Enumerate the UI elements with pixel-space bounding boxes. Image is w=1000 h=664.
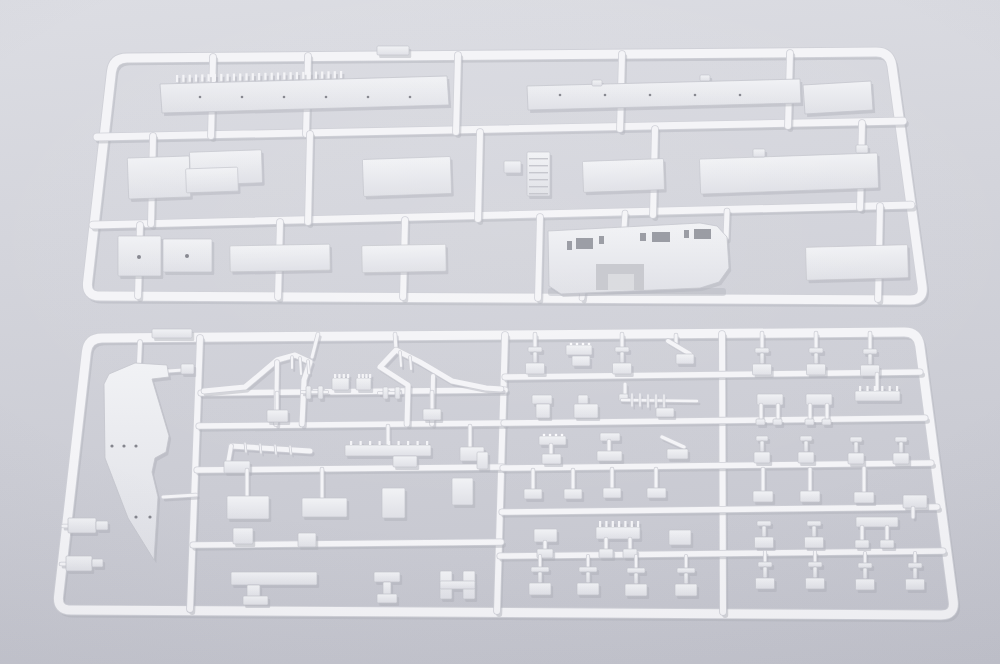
bracket-part [63, 518, 110, 536]
runner-horizontal [199, 423, 506, 429]
fitting-part [856, 553, 877, 593]
rail-part [855, 517, 900, 551]
pin-part [854, 468, 876, 506]
pin-part [753, 469, 775, 505]
runner-horizontal [502, 507, 939, 515]
fitting-part [754, 436, 772, 466]
fitting-part [893, 437, 911, 467]
runner-horizontal [505, 372, 922, 380]
deckhouse-part [302, 469, 349, 520]
deck-part [806, 245, 911, 284]
fitting-part [755, 521, 776, 551]
platform-part [362, 156, 453, 199]
vent-part [332, 374, 351, 393]
sprue-b-detail-parts [58, 329, 955, 618]
flight-deck-part [160, 71, 451, 116]
antenna-part [619, 384, 699, 420]
fitting-part [625, 556, 649, 599]
sprue-a-deck-parts [87, 46, 924, 303]
runner-vertical [478, 132, 482, 222]
fitting-part [848, 437, 866, 467]
boom-part [345, 426, 433, 470]
deck-part [699, 145, 880, 197]
vent-part [855, 374, 902, 404]
block-part [233, 528, 255, 547]
ladder-part [504, 152, 552, 199]
plate-part [163, 239, 214, 275]
funnel-part [532, 395, 554, 421]
deckhouse-part [382, 488, 407, 521]
fitting-part [577, 556, 601, 598]
deck-part [803, 81, 875, 117]
block-part [669, 530, 693, 548]
fitting-part [798, 436, 816, 466]
fitting-part [662, 437, 690, 462]
plate-part [362, 244, 449, 275]
pin-part [564, 470, 584, 502]
runner-horizontal [504, 418, 927, 426]
fitting-part [675, 556, 699, 599]
fitting-part [805, 521, 826, 551]
deckhouse-part [227, 470, 271, 522]
runner-horizontal [97, 121, 905, 140]
runner-vertical [456, 55, 460, 135]
island-superstructure-part [548, 223, 731, 297]
pin-part [800, 469, 822, 505]
pin-part [647, 469, 668, 501]
vent-part [356, 374, 373, 393]
plate-part [118, 236, 163, 279]
gun-part [566, 343, 594, 369]
block-part [298, 533, 318, 550]
platform-part [127, 150, 264, 202]
injection-tab [152, 329, 194, 341]
deckhouse-part [452, 478, 475, 508]
t-bracket-part [231, 572, 319, 608]
runner-horizontal [500, 551, 945, 559]
runner-vertical [538, 217, 542, 301]
block-part [903, 495, 929, 520]
fitting-part [574, 395, 600, 421]
t-bracket-part [374, 572, 402, 606]
bracket-part [61, 556, 105, 574]
scene-svg [0, 0, 1000, 664]
fitting-part [906, 553, 927, 593]
pin-part [524, 470, 544, 502]
block-part [423, 392, 443, 423]
platform-part [582, 159, 666, 196]
pin-part [603, 469, 623, 501]
runner-horizontal [93, 205, 913, 228]
runner-horizontal [503, 463, 933, 471]
fitting-part [861, 333, 882, 379]
mast-arch-part [204, 334, 320, 427]
deck-part [527, 75, 803, 113]
plate-part [230, 244, 333, 275]
fitting-part [529, 556, 553, 598]
fitting-part [597, 433, 624, 464]
injection-tab [377, 46, 411, 58]
radar-part [539, 434, 568, 467]
hull-blade-part [104, 342, 198, 563]
product-photo-model-kit-sprues [0, 0, 1000, 664]
h-bracket-part [440, 571, 477, 602]
runner-vertical [308, 134, 312, 225]
